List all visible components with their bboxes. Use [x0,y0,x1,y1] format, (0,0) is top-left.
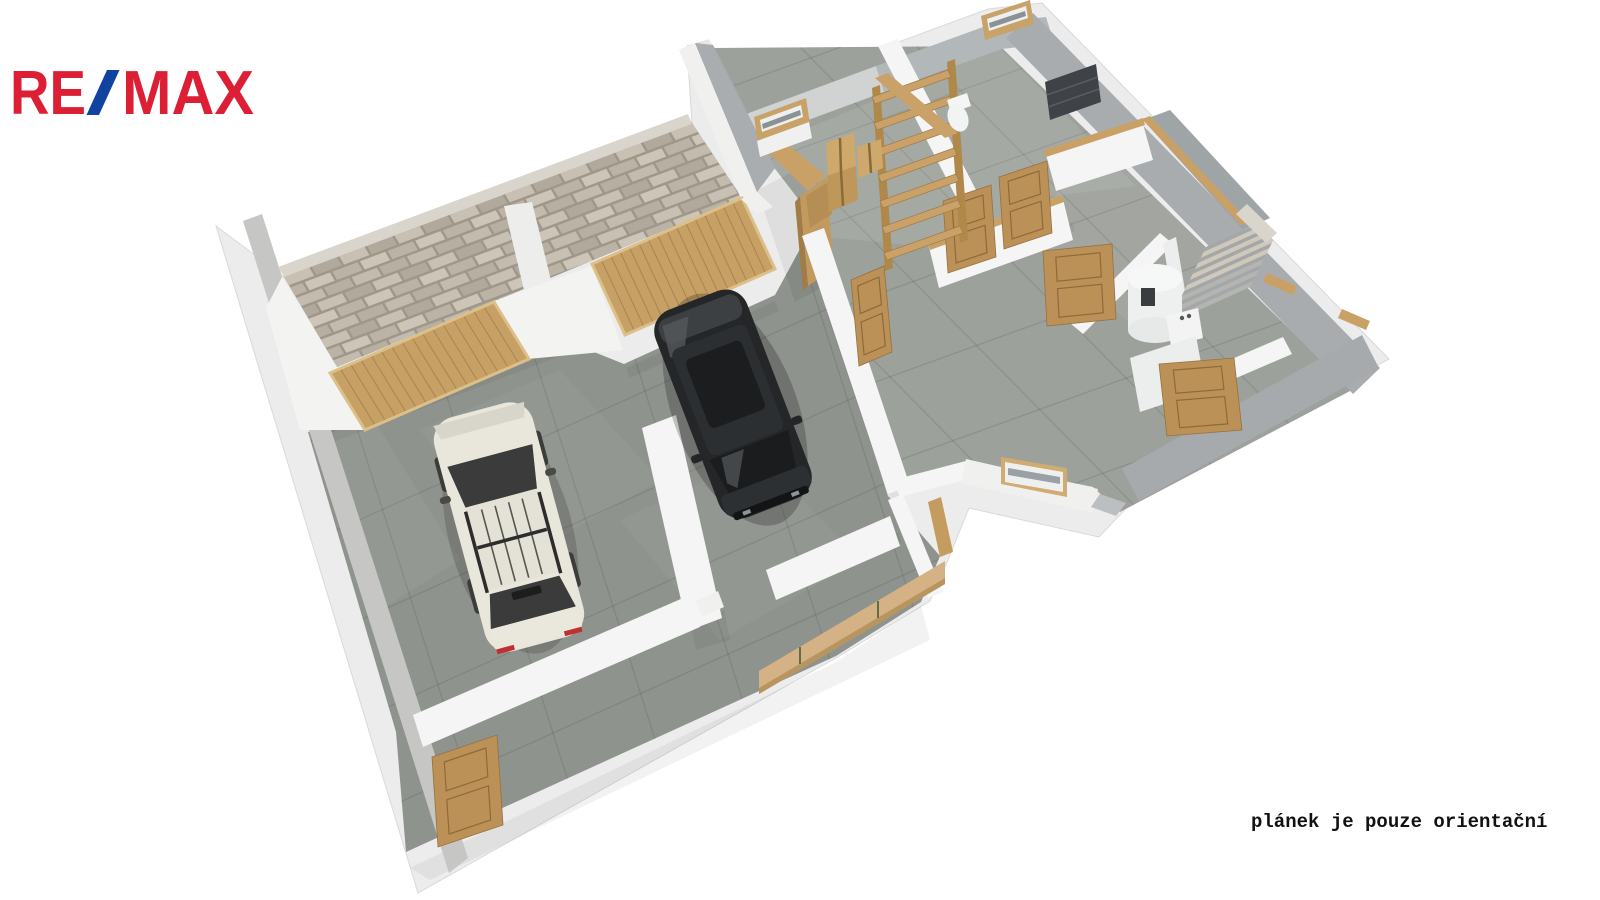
svg-text:plánek je pouze orientační: plánek je pouze orientační [1251,811,1547,833]
svg-text:RE: RE [10,59,86,128]
svg-text:MAX: MAX [122,59,254,128]
